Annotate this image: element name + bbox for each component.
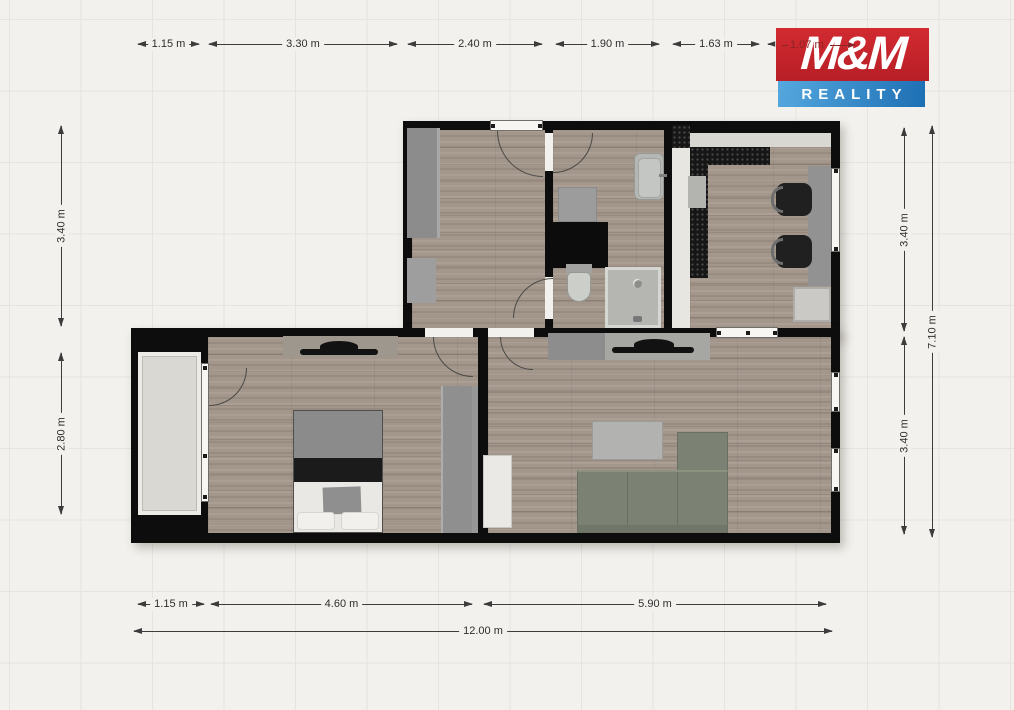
- dim-label: 1.15 m: [148, 38, 190, 51]
- kitchen-counter-corner: [672, 125, 690, 148]
- bedroom-wardrobe: [441, 386, 478, 533]
- arrow-right: [651, 41, 660, 47]
- window-tick: [717, 331, 721, 335]
- mm-reality-logo-top: M&M: [776, 28, 929, 81]
- window-tick: [834, 169, 838, 173]
- window-tick: [834, 247, 838, 251]
- sofa-front-edge: [578, 525, 727, 532]
- balcony-floor: [138, 352, 201, 515]
- dim-label: 3.40 m: [899, 209, 912, 251]
- living-room-window-2: [831, 448, 840, 492]
- bathroom-door-gap: [545, 133, 553, 171]
- toilet-bowl: [567, 272, 591, 302]
- arrow-left: [483, 601, 492, 607]
- arrow-down: [901, 526, 907, 535]
- arrow-right: [824, 628, 833, 634]
- kitchen-appliance-left: [688, 176, 706, 208]
- utility-shaft: [547, 222, 608, 268]
- bed-throw: [323, 486, 362, 514]
- bed-pillow-right: [341, 512, 379, 530]
- dim-label: 1.15 m: [150, 598, 192, 611]
- floor-plan-canvas: 1.15 m 3.30 m 2.40 m 1.90 m 1.63 m 1.07 …: [0, 0, 1014, 710]
- door-jamb-tick: [491, 124, 495, 128]
- hallway-wardrobe: [407, 128, 440, 238]
- kitchen-top-strip: [690, 133, 831, 147]
- arrow-left: [137, 601, 146, 607]
- door-jamb-tick: [203, 495, 207, 499]
- kitchen-desk: [808, 166, 831, 286]
- bedroom-door-gap: [425, 328, 473, 337]
- window-tick: [746, 331, 750, 335]
- arrow-down: [58, 506, 64, 515]
- living-room-window-1: [831, 372, 840, 412]
- arrow-right: [534, 41, 543, 47]
- bedroom-tv: [300, 349, 378, 355]
- door-jamb-tick: [203, 454, 207, 458]
- window-tick: [773, 331, 777, 335]
- arrow-down: [58, 318, 64, 327]
- dim-label: 3.40 m: [899, 415, 912, 457]
- hallway-cabinet: [407, 258, 436, 303]
- mm-reality-logo-bottom: REALITY: [778, 81, 925, 107]
- dim-top-5: 1.63 m: [672, 39, 760, 51]
- dim-label: 12.00 m: [459, 625, 507, 638]
- arrow-left: [672, 41, 681, 47]
- kitchen-chair-1: [776, 183, 812, 216]
- logo-text-mm: M&M: [799, 25, 906, 80]
- dim-bottom-total: 12.00 m: [133, 626, 833, 638]
- dim-top-4: 1.90 m: [555, 39, 660, 51]
- bed-band-dark: [294, 458, 382, 482]
- logo-text-reality: REALITY: [795, 86, 907, 103]
- dim-label: 1.63 m: [695, 38, 737, 51]
- dim-right-total: 7.10 m: [927, 125, 939, 538]
- sofa-main: [577, 470, 728, 533]
- dim-top-3: 2.40 m: [407, 39, 543, 51]
- kitchen-counter-side: [690, 147, 708, 278]
- arrow-right: [191, 41, 200, 47]
- dim-label: 7.10 m: [927, 311, 940, 353]
- dim-label: 2.80 m: [56, 413, 69, 455]
- balcony-door: [201, 363, 209, 502]
- arrow-down: [901, 323, 907, 332]
- dim-label: 1.07 m: [790, 39, 824, 51]
- sofa-seam: [627, 472, 628, 532]
- bed-pillow-left: [297, 512, 335, 530]
- dim-left-1: 3.40 m: [56, 125, 68, 327]
- dim-label: 4.60 m: [321, 598, 363, 611]
- washing-machine: [558, 187, 597, 222]
- shower-fixture: [633, 316, 642, 322]
- dim-label: 3.30 m: [282, 38, 324, 51]
- bed-duvet-gray: [294, 411, 382, 458]
- kitchen-wall-light-band: [672, 148, 690, 328]
- dim-left-2: 2.80 m: [56, 352, 68, 515]
- dim-line: [830, 45, 848, 46]
- sink-basin: [638, 158, 661, 198]
- living-tv: [612, 347, 694, 353]
- arrow-left: [133, 628, 142, 634]
- shower-tray: [605, 267, 661, 328]
- dim-bottom-1: 1.15 m: [137, 599, 205, 611]
- dim-bottom-2: 4.60 m: [210, 599, 473, 611]
- door-jamb-tick: [203, 366, 207, 370]
- kitchen-chair-2: [776, 235, 812, 268]
- kitchen-pass-through-window: [716, 327, 778, 338]
- media-console-left: [548, 333, 605, 360]
- dim-top-1: 1.15 m: [137, 39, 200, 51]
- arrow-right: [848, 42, 856, 48]
- arrow-right: [818, 601, 827, 607]
- arrow-up: [929, 125, 935, 134]
- dim-label: 3.40 m: [56, 205, 69, 247]
- coffee-table: [592, 421, 663, 460]
- dim-line: [782, 45, 788, 46]
- arrow-right: [751, 41, 760, 47]
- bathroom-sink: [634, 153, 664, 200]
- sofa-seam: [677, 472, 678, 532]
- toilet: [566, 264, 592, 304]
- window-tick: [834, 487, 838, 491]
- kitchen-window: [831, 168, 840, 252]
- dim-label: 1.90 m: [587, 38, 629, 51]
- dim-right-1: 3.40 m: [899, 127, 911, 332]
- entrance-door: [490, 120, 543, 131]
- dim-top-2: 3.30 m: [208, 39, 398, 51]
- arrow-left: [407, 41, 416, 47]
- dim-label: 5.90 m: [634, 598, 676, 611]
- dim-overlap-on-logo: 1.07 m: [782, 39, 856, 51]
- arrow-right: [389, 41, 398, 47]
- living-room-door-gap: [488, 328, 534, 337]
- arrow-up: [901, 336, 907, 345]
- door-jamb-tick: [538, 124, 542, 128]
- arrow-up: [58, 352, 64, 361]
- arrow-left: [555, 41, 564, 47]
- window-tick: [834, 407, 838, 411]
- window-tick: [834, 449, 838, 453]
- arrow-up: [901, 127, 907, 136]
- living-cabinet: [483, 455, 512, 528]
- dim-label: 2.40 m: [454, 38, 496, 51]
- arrow-left: [208, 41, 217, 47]
- dim-bottom-3: 5.90 m: [483, 599, 827, 611]
- dim-right-2: 3.40 m: [899, 336, 911, 535]
- arrow-right: [464, 601, 473, 607]
- arrow-down: [929, 529, 935, 538]
- sink-tap: [659, 174, 667, 177]
- window-tick: [834, 373, 838, 377]
- arrow-up: [58, 125, 64, 134]
- arrow-left: [137, 41, 146, 47]
- shower-drain: [633, 279, 642, 288]
- double-bed: [293, 410, 383, 533]
- kitchen-appliance-corner: [793, 287, 831, 322]
- arrow-left: [210, 601, 219, 607]
- arrow-right: [196, 601, 205, 607]
- sofa-chaise: [677, 432, 728, 472]
